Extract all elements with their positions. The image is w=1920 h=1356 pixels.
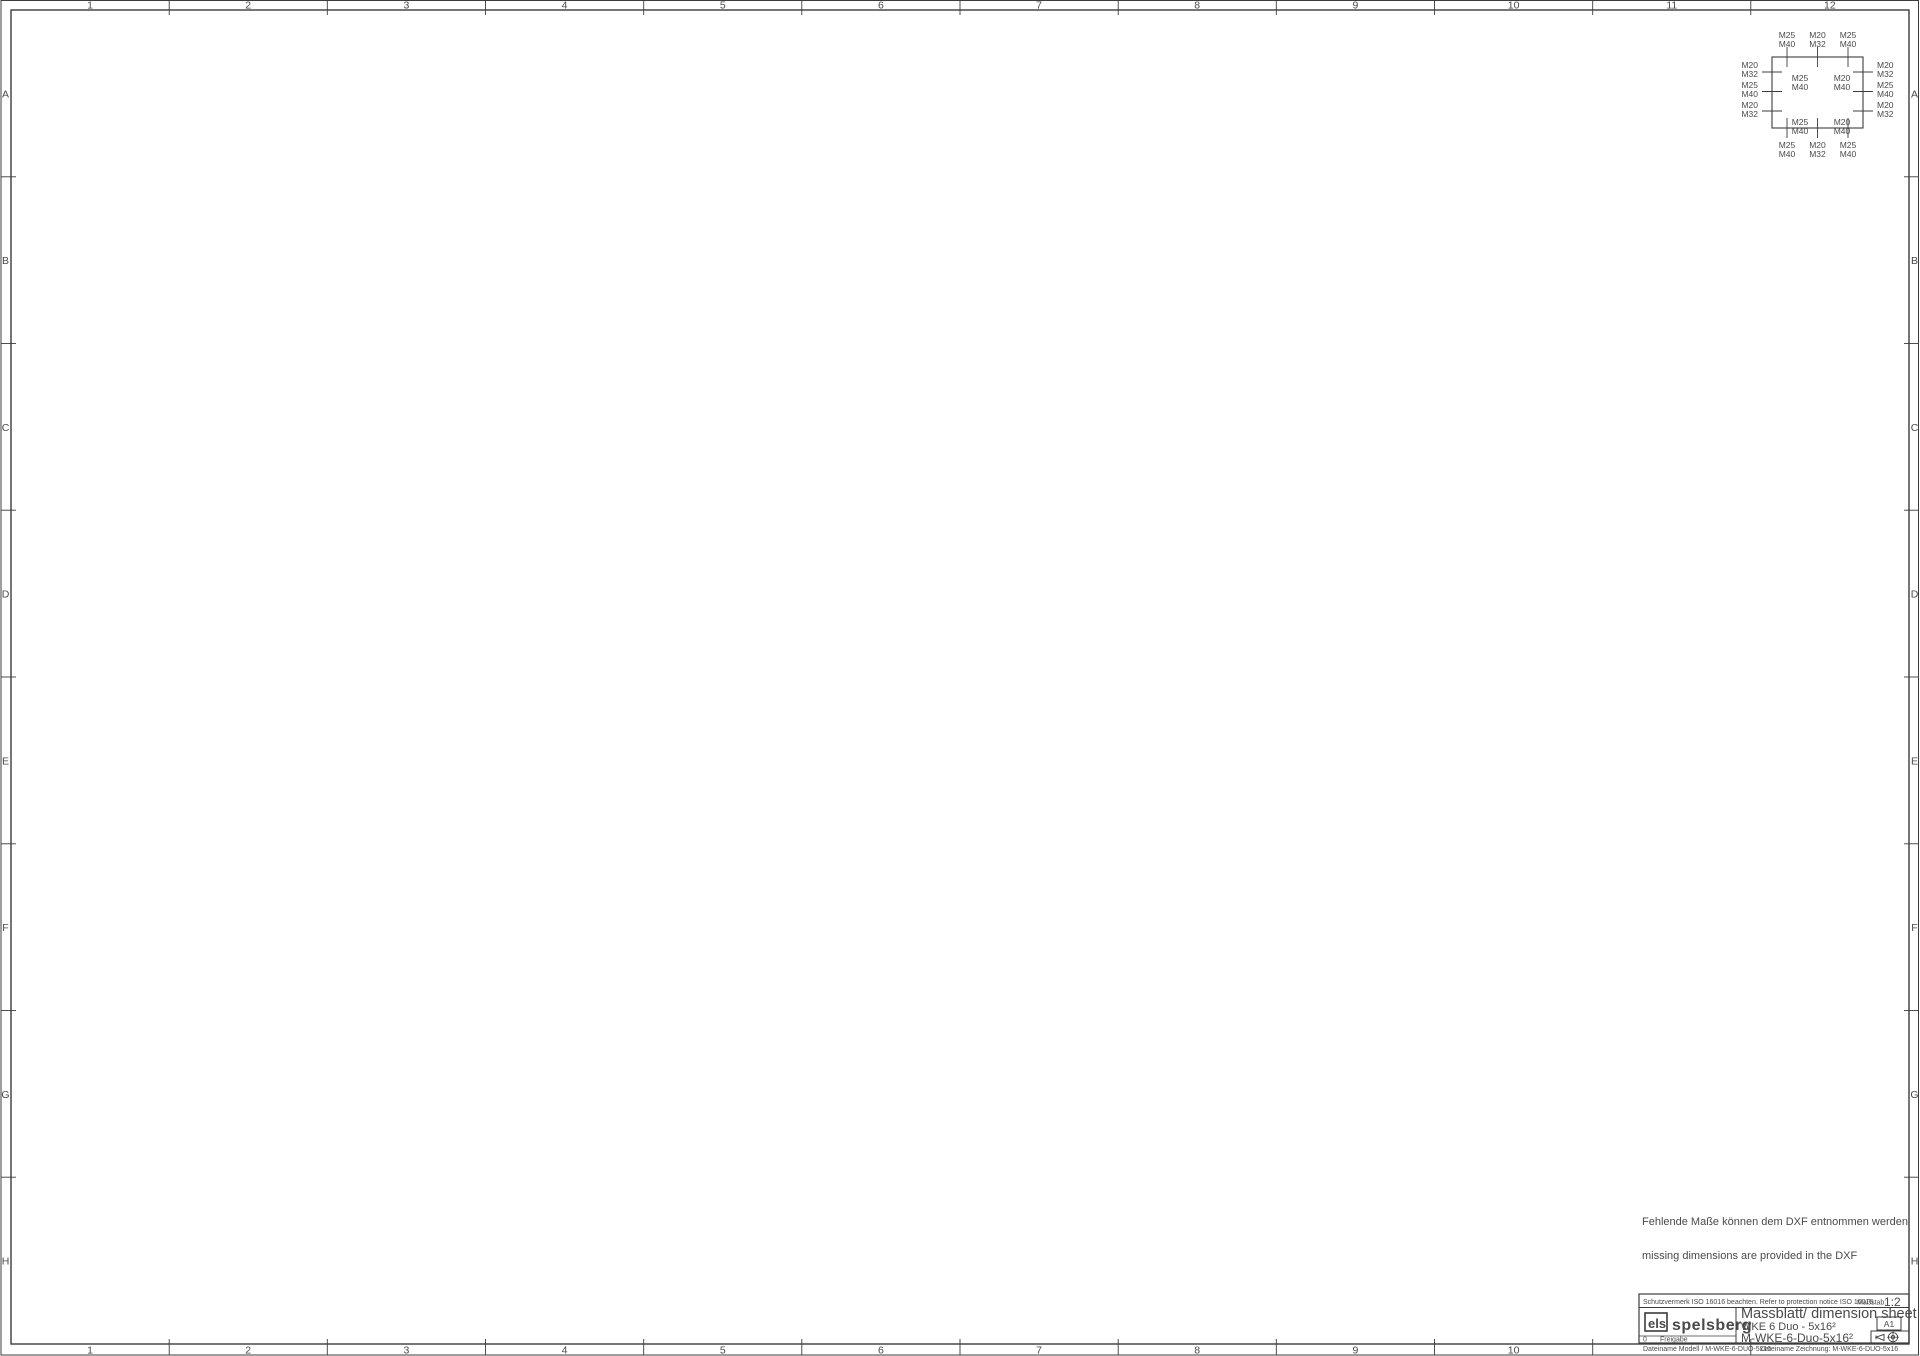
svg-text:1: 1 xyxy=(87,0,93,12)
svg-text:Dateiname Modell / M-WKE-6-DUO: Dateiname Modell / M-WKE-6-DUO-5x16 xyxy=(1643,1346,1771,1353)
svg-text:M40: M40 xyxy=(1877,89,1894,99)
svg-text:7: 7 xyxy=(1036,0,1042,12)
svg-text:M32: M32 xyxy=(1877,109,1894,119)
svg-text:F: F xyxy=(1911,922,1917,934)
svg-text:G: G xyxy=(1910,1089,1918,1101)
svg-text:5: 5 xyxy=(720,0,726,12)
svg-text:M40: M40 xyxy=(1792,82,1809,92)
svg-text:8: 8 xyxy=(1194,0,1200,12)
svg-text:A: A xyxy=(1911,88,1918,100)
svg-text:1: 1 xyxy=(87,1345,93,1356)
svg-text:E: E xyxy=(1911,755,1918,767)
svg-text:F: F xyxy=(2,922,8,934)
svg-text:els: els xyxy=(1648,1316,1666,1331)
svg-text:M32: M32 xyxy=(1877,69,1894,79)
svg-text:3: 3 xyxy=(403,0,409,12)
svg-text:C: C xyxy=(2,422,10,434)
svg-text:M40: M40 xyxy=(1741,89,1758,99)
svg-text:missing dimensions are provide: missing dimensions are provided in the D… xyxy=(1642,1250,1857,1262)
svg-text:A1: A1 xyxy=(1884,1319,1895,1329)
svg-text:M40: M40 xyxy=(1840,149,1857,159)
svg-text:G: G xyxy=(1,1089,9,1101)
svg-text:D: D xyxy=(2,589,10,601)
svg-text:E: E xyxy=(2,755,9,767)
svg-text:D: D xyxy=(1911,589,1919,601)
svg-text:Dateiname Zeichnung: M-WKE-6-: Dateiname Zeichnung: M-WKE-6-DUO-5x16 xyxy=(1760,1346,1898,1353)
svg-text:8: 8 xyxy=(1194,1345,1200,1356)
svg-text:0: 0 xyxy=(1643,1337,1647,1344)
svg-text:H: H xyxy=(2,1256,10,1268)
svg-text:B: B xyxy=(2,255,9,267)
svg-text:M40: M40 xyxy=(1779,149,1796,159)
svg-text:M40: M40 xyxy=(1792,126,1809,136)
svg-text:M32: M32 xyxy=(1809,149,1826,159)
svg-text:11: 11 xyxy=(1666,0,1677,12)
svg-text:Schutzvermerk ISO 16016 beacht: Schutzvermerk ISO 16016 beachten. Refer … xyxy=(1643,1299,1875,1306)
svg-text:M-WKE-6-Duo-5x16²: M-WKE-6-Duo-5x16² xyxy=(1741,1331,1853,1345)
svg-text:3: 3 xyxy=(403,1345,409,1356)
svg-text:M40: M40 xyxy=(1840,39,1857,49)
svg-text:M40: M40 xyxy=(1834,126,1851,136)
svg-text:6: 6 xyxy=(878,1345,884,1356)
svg-text:A: A xyxy=(2,88,9,100)
svg-text:M32: M32 xyxy=(1741,69,1758,79)
svg-text:10: 10 xyxy=(1508,1345,1520,1356)
svg-text:7: 7 xyxy=(1036,1345,1042,1356)
svg-text:6: 6 xyxy=(878,0,884,12)
svg-text:4: 4 xyxy=(562,0,568,12)
svg-text:M32: M32 xyxy=(1741,109,1758,119)
svg-text:2: 2 xyxy=(245,1345,251,1356)
svg-text:10: 10 xyxy=(1508,0,1520,12)
svg-text:12: 12 xyxy=(1824,0,1836,12)
svg-text:C: C xyxy=(1911,422,1919,434)
svg-text:B: B xyxy=(1911,255,1918,267)
svg-text:4: 4 xyxy=(562,1345,568,1356)
svg-text:M40: M40 xyxy=(1834,82,1851,92)
svg-text:Freigabe: Freigabe xyxy=(1660,1337,1688,1344)
svg-text:M40: M40 xyxy=(1779,39,1796,49)
svg-text:Fehlende Maße können dem DXF e: Fehlende Maße können dem DXF entnommen w… xyxy=(1642,1216,1908,1228)
svg-text:9: 9 xyxy=(1352,1345,1358,1356)
svg-text:5: 5 xyxy=(720,1345,726,1356)
svg-text:9: 9 xyxy=(1352,0,1358,12)
svg-text:2: 2 xyxy=(245,0,251,12)
svg-text:H: H xyxy=(1911,1256,1919,1268)
svg-text:M32: M32 xyxy=(1809,39,1826,49)
